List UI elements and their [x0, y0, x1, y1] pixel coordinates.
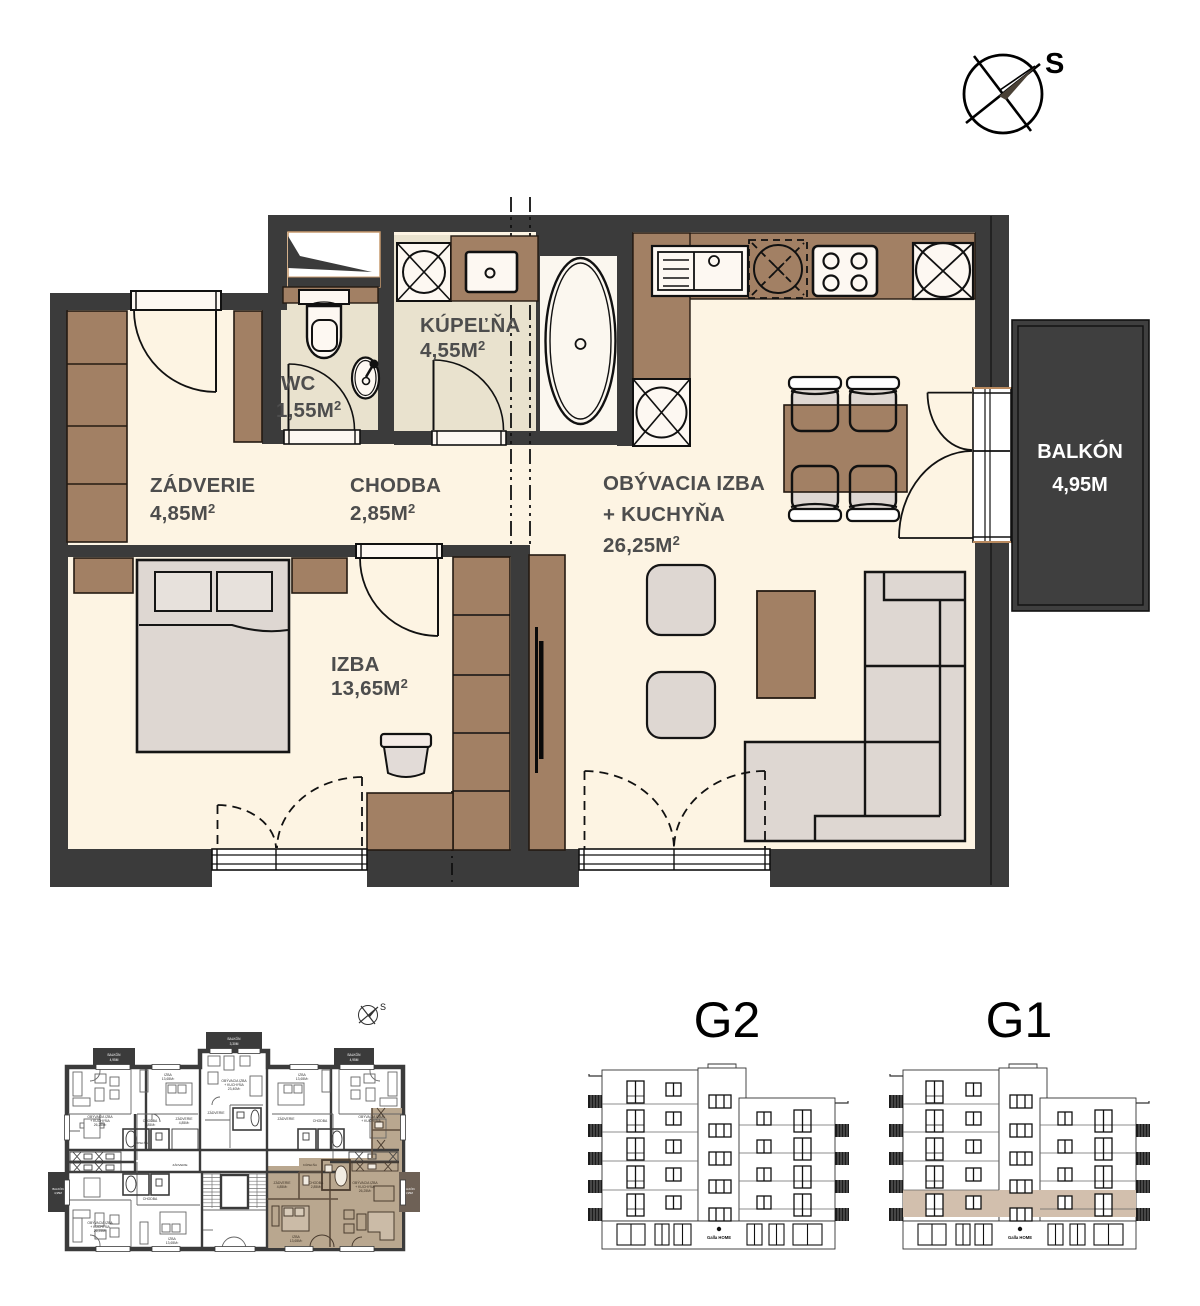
svg-text:KÚPEĽŇA: KÚPEĽŇA	[134, 1140, 148, 1145]
svg-text:26,25M²: 26,25M²	[359, 1189, 372, 1193]
svg-text:4,95M: 4,95M	[54, 1191, 62, 1195]
svg-text:ZÁDVERIE: ZÁDVERIE	[278, 1117, 296, 1121]
svg-text:4,95M: 4,95M	[1052, 474, 1108, 496]
svg-text:2,85M²: 2,85M²	[311, 1185, 322, 1189]
svg-text:3,30M: 3,30M	[230, 1042, 239, 1046]
svg-text:WC: WC	[281, 372, 316, 395]
svg-text:4,85M2: 4,85M2	[150, 501, 215, 525]
svg-text:KÚPEĽŇA: KÚPEĽŇA	[420, 313, 521, 337]
svg-text:CHODBA: CHODBA	[313, 1119, 328, 1123]
svg-text:13,65M²: 13,65M²	[166, 1241, 179, 1245]
svg-text:4,85M²: 4,85M²	[179, 1121, 190, 1125]
svg-text:4,85M²: 4,85M²	[277, 1185, 288, 1189]
svg-text:OBÝVACIA IZBA: OBÝVACIA IZBA	[603, 471, 765, 495]
svg-text:1,55M2: 1,55M2	[276, 398, 341, 422]
svg-text:13,65M²: 13,65M²	[290, 1239, 303, 1243]
svg-text:13,65M²: 13,65M²	[296, 1077, 309, 1081]
svg-text:13,65M2: 13,65M2	[331, 676, 408, 700]
svg-text:BALKÓN: BALKÓN	[1037, 439, 1123, 463]
svg-text:G2: G2	[694, 992, 761, 1048]
svg-text:BALKÓN: BALKÓN	[348, 1052, 362, 1057]
svg-text:ZÁDVERIE: ZÁDVERIE	[150, 474, 255, 497]
svg-text:ZÁDVERIE: ZÁDVERIE	[172, 1163, 187, 1167]
svg-text:S: S	[1045, 48, 1064, 80]
svg-text:Galla HOME: Galla HOME	[1008, 1235, 1032, 1240]
svg-text:CHODBA: CHODBA	[350, 474, 441, 497]
svg-text:BALKÓN: BALKÓN	[228, 1036, 242, 1041]
svg-text:KÚPEĽŇA: KÚPEĽŇA	[303, 1162, 317, 1167]
svg-text:26,25M²: 26,25M²	[94, 1123, 107, 1127]
svg-text:13,65M²: 13,65M²	[162, 1077, 175, 1081]
svg-text:ZÁDVERIE: ZÁDVERIE	[208, 1111, 226, 1115]
svg-text:G1: G1	[986, 992, 1053, 1048]
svg-text:CHODBA: CHODBA	[143, 1197, 158, 1201]
svg-text:4,95M: 4,95M	[405, 1191, 413, 1195]
svg-text:26,25M2: 26,25M2	[603, 533, 680, 557]
svg-text:2,85M²: 2,85M²	[145, 1123, 156, 1127]
svg-text:BALKÓN: BALKÓN	[108, 1052, 122, 1057]
svg-text:4,95M: 4,95M	[350, 1058, 359, 1062]
svg-text:+ KUCHYŇA: + KUCHYŇA	[603, 502, 725, 526]
svg-text:4,95M: 4,95M	[110, 1058, 119, 1062]
svg-text:4,55M2: 4,55M2	[420, 338, 485, 362]
svg-text:23,40M²: 23,40M²	[228, 1087, 241, 1091]
svg-text:+ KUCHYŇA: + KUCHYŇA	[361, 1119, 381, 1123]
svg-text:26,25M²: 26,25M²	[94, 1229, 107, 1233]
svg-text:2,85M2: 2,85M2	[350, 501, 415, 525]
svg-text:S: S	[380, 1002, 386, 1012]
svg-text:Galla HOME: Galla HOME	[707, 1235, 731, 1240]
svg-text:IZBA: IZBA	[331, 653, 380, 676]
